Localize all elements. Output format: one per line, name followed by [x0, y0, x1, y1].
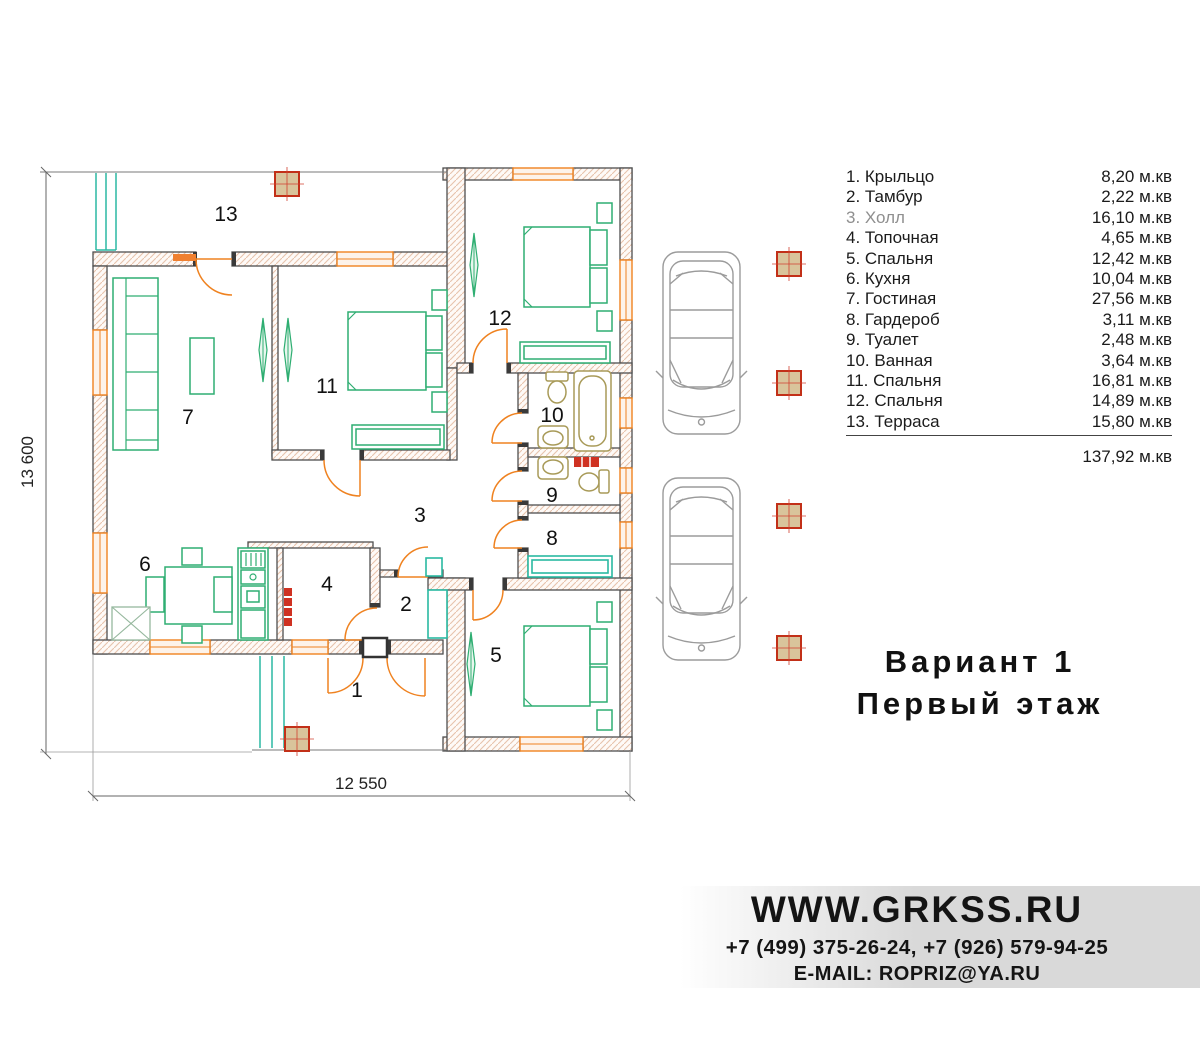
footer-banner: WWW.GRKSS.RU +7 (499) 375-26-24, +7 (926…: [680, 886, 1200, 988]
legend-room-area: 15,80 м.кв: [1092, 412, 1172, 432]
footer-email: E-MAIL: ROPRIZ@YA.RU: [680, 963, 1154, 986]
window-icon: [520, 737, 583, 751]
legend-room-name: 3. Холл: [846, 208, 905, 228]
title-line-1: Вариант 1: [820, 641, 1140, 683]
legend-room-area: 2,48 м.кв: [1101, 330, 1172, 350]
footer-phones: +7 (499) 375-26-24, +7 (926) 579-94-25: [680, 936, 1154, 960]
room-label-5: 5: [490, 644, 502, 667]
dining-table-icon: [146, 548, 232, 643]
wardrobe-icon: [528, 556, 612, 577]
legend-room-area: 12,42 м.кв: [1092, 249, 1172, 269]
title-line-2: Первый этаж: [820, 683, 1140, 725]
legend-row: 9. Туалет2,48 м.кв: [846, 330, 1172, 350]
legend-room-name: 5. Спальня: [846, 249, 933, 269]
legend-room-area: 27,56 м.кв: [1092, 289, 1172, 309]
legend-room-area: 8,20 м.кв: [1101, 167, 1172, 187]
legend-room-area: 2,22 м.кв: [1101, 187, 1172, 207]
bed-icon: [348, 290, 447, 412]
legend-room-area: 4,65 м.кв: [1101, 228, 1172, 248]
radiator-icon: [284, 588, 292, 626]
room-labels: 1 2 3 4 5 6 7 8 9 10 11 12 13: [139, 203, 564, 702]
window-icon: [292, 640, 328, 654]
legend-room-name: 2. Тамбур: [846, 187, 923, 207]
legend-row: 6. Кухня10,04 м.кв: [846, 269, 1172, 289]
sofa-icon: [113, 278, 158, 450]
legend-row: 11. Спальня16,81 м.кв: [846, 371, 1172, 391]
room-label-3: 3: [414, 504, 426, 527]
page: 13 600 12 550 1 2 3 4 5 6 7 8 9 10 11 12…: [0, 0, 1200, 1050]
kitchen-counter-icon: [238, 548, 268, 640]
sink-icon: [538, 457, 568, 479]
legend-row: 1. Крыльцо8,20 м.кв: [846, 167, 1172, 187]
room-label-13: 13: [214, 203, 237, 226]
window-icon: [337, 252, 393, 266]
window-icon: [620, 468, 632, 493]
room-label-2: 2: [400, 593, 412, 616]
wardrobe-icon: [520, 342, 610, 363]
legend-room-name: 10. Ванная: [846, 351, 933, 371]
closet-icon: [426, 558, 442, 576]
room-label-1: 1: [351, 679, 363, 702]
dim-width-label: 12 550: [335, 774, 387, 793]
toilet-icon: [546, 372, 568, 403]
legend-room-area: 16,81 м.кв: [1092, 371, 1172, 391]
window-icon: [620, 522, 632, 548]
appliance-icon: [112, 607, 150, 640]
room-label-11: 11: [316, 375, 338, 398]
toilet-icon: [579, 470, 609, 493]
legend-row: 10. Ванная3,64 м.кв: [846, 351, 1172, 371]
legend-row: 12. Спальня14,89 м.кв: [846, 391, 1172, 411]
legend-row: 3. Холл16,10 м.кв: [846, 208, 1172, 228]
legend-divider: [846, 435, 1172, 436]
legend-row: 4. Топочная4,65 м.кв: [846, 228, 1172, 248]
legend-room-name: 13. Терраса: [846, 412, 940, 432]
legend-row: 13. Терраса15,80 м.кв: [846, 412, 1172, 432]
room-legend: 1. Крыльцо8,20 м.кв 2. Тамбур2,22 м.кв 3…: [846, 167, 1172, 467]
room-label-10: 10: [540, 404, 563, 427]
legend-row: 7. Гостиная27,56 м.кв: [846, 289, 1172, 309]
radiator-icon: [574, 457, 599, 467]
legend-total: 137,92 м.кв: [846, 447, 1172, 467]
title-block: Вариант 1 Первый этаж: [820, 641, 1140, 725]
legend-room-area: 16,10 м.кв: [1092, 208, 1172, 228]
window-icon: [620, 260, 632, 320]
legend-room-area: 3,64 м.кв: [1101, 351, 1172, 371]
legend-room-area: 14,89 м.кв: [1092, 391, 1172, 411]
room-label-8: 8: [546, 527, 558, 550]
window-icon: [93, 533, 107, 593]
bathtub-icon: [574, 371, 611, 451]
room-label-4: 4: [321, 573, 333, 596]
sink-icon: [538, 426, 568, 448]
room-label-12: 12: [488, 307, 511, 330]
room-label-7: 7: [182, 406, 194, 429]
legend-room-name: 12. Спальня: [846, 391, 943, 411]
porch-steps: [252, 656, 447, 750]
closet-icon: [428, 590, 447, 638]
legend-room-area: 3,11 м.кв: [1103, 310, 1172, 330]
window-icon: [513, 168, 573, 180]
legend-room-name: 9. Туалет: [846, 330, 919, 350]
legend-row: 5. Спальня12,42 м.кв: [846, 249, 1172, 269]
legend-room-name: 8. Гардероб: [846, 310, 940, 330]
legend-room-area: 10,04 м.кв: [1092, 269, 1172, 289]
terrace-steps: [40, 172, 447, 250]
window-icon: [93, 330, 107, 395]
legend-row: 8. Гардероб3,11 м.кв: [846, 310, 1172, 330]
room-label-9: 9: [546, 484, 558, 507]
legend-row: 2. Тамбур2,22 м.кв: [846, 187, 1172, 207]
dim-height-label: 13 600: [18, 436, 37, 488]
window-icon: [620, 398, 632, 428]
legend-room-name: 4. Топочная: [846, 228, 939, 248]
room-label-6: 6: [139, 553, 151, 576]
legend-room-name: 7. Гостиная: [846, 289, 936, 309]
legend-room-name: 1. Крыльцо: [846, 167, 934, 187]
legend-room-name: 11. Спальня: [846, 371, 941, 391]
footer-website: WWW.GRKSS.RU: [680, 889, 1154, 931]
legend-room-name: 6. Кухня: [846, 269, 910, 289]
entrance-threshold: [363, 638, 387, 657]
coffee-table-icon: [190, 338, 214, 394]
wardrobe-icon: [352, 425, 444, 449]
